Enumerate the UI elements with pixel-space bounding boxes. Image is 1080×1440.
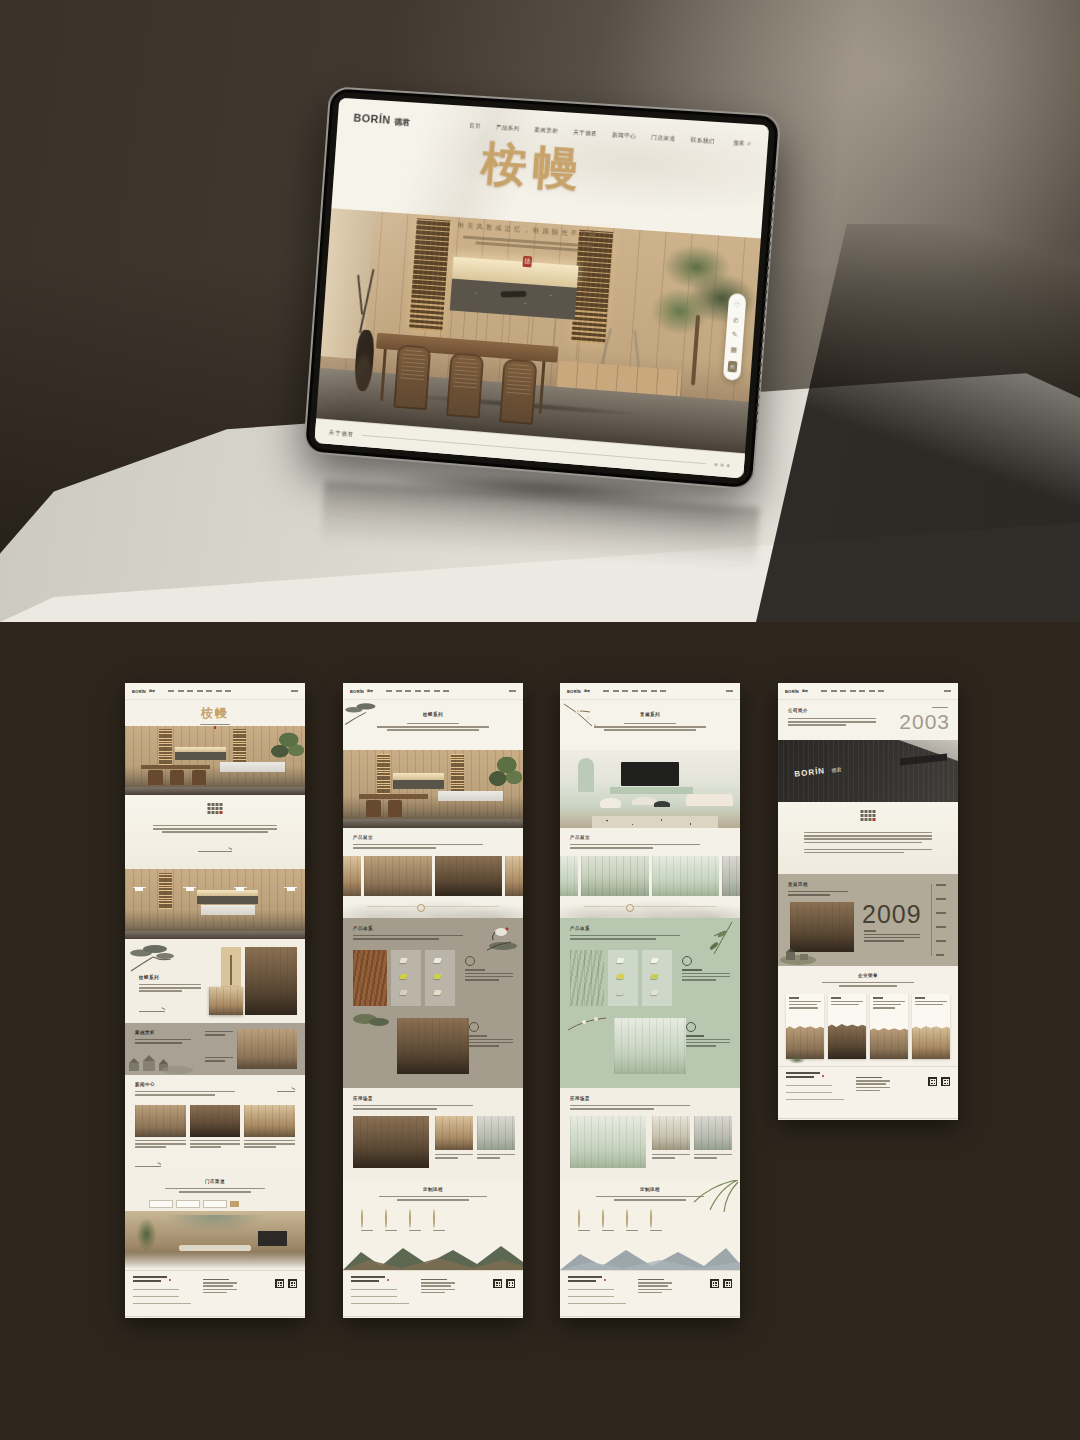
mini-hero-title: 桉幔 [201, 706, 229, 720]
news-all-button[interactable] [135, 1162, 161, 1167]
mini-header: BORÍN 德君 [778, 683, 958, 700]
page-intro-placeholder [594, 723, 706, 731]
bottom-link-label[interactable]: 关于德君 [329, 429, 355, 438]
scene-caption [652, 1154, 690, 1159]
logo-text-cn: 德君 [394, 116, 410, 128]
news-photo [190, 1105, 241, 1137]
scene-caption [435, 1154, 473, 1159]
mini-footer [125, 1270, 305, 1318]
mini-footer [560, 1270, 740, 1318]
mini-logo: BORÍN [785, 689, 799, 694]
process-step[interactable] [602, 1210, 614, 1231]
page-title-section: 桉幔系列 [343, 700, 523, 750]
mini-header: BORÍN 德君 [125, 683, 305, 700]
footer-slogan [133, 1276, 167, 1282]
news-card[interactable] [244, 1105, 295, 1148]
display-gallery[interactable] [343, 856, 523, 896]
honor-card[interactable] [870, 994, 908, 1059]
page-title: 青黛系列 [560, 712, 740, 717]
magnifier-icon: ⌕ [747, 139, 752, 147]
gallery-photo [435, 856, 503, 896]
mini-search [509, 690, 516, 692]
poem-seal-block [861, 810, 876, 821]
mini-footer [778, 1066, 958, 1120]
series-hero-photo [560, 750, 740, 828]
mountain-mural [161, 1215, 269, 1239]
village-painting [778, 944, 834, 966]
phone-icon[interactable]: ✆ [733, 316, 739, 324]
honors-title: 企业荣誉 [778, 973, 958, 978]
intro-title: 公司简介 [788, 708, 808, 713]
gallery-photo [652, 856, 720, 896]
footer-contact [421, 1279, 455, 1293]
wood-grain-panel [353, 950, 387, 1006]
mist-mountains [560, 892, 740, 918]
case-caption [205, 1031, 233, 1036]
honor-card[interactable] [912, 994, 950, 1059]
mini-header: BORÍN 德君 [560, 683, 740, 700]
display-text-placeholder [353, 844, 483, 849]
cases-title: 案例赏析 [135, 1030, 155, 1035]
studio-scene: 桉幔 唯美风雅成追忆，唯愿韶光不负卿 德 ♡ ✆ ✎ ▦ 约 BORÍN [0, 0, 1080, 622]
milestone-year: 2009 [862, 900, 922, 929]
scene-photo-large [570, 1116, 646, 1168]
slogan-red-dot [169, 1279, 171, 1281]
gallery-photo-edge [343, 856, 361, 896]
case-caption [205, 1057, 233, 1062]
footer-contact [203, 1279, 237, 1293]
village-ink-painting [125, 1051, 195, 1075]
bedroom-photo [209, 987, 243, 1015]
series-text-placeholder [139, 984, 201, 992]
green-tree-painting [351, 1010, 391, 1030]
screenshot-home-page: BORÍN 德君 桉幔 [125, 683, 305, 1318]
news-photo [244, 1105, 295, 1137]
sofa [179, 1245, 251, 1251]
mini-search [291, 690, 298, 692]
stores-title: 门店渠道 [125, 1179, 305, 1184]
edit-icon[interactable]: ✎ [732, 331, 738, 339]
mini-logo-cn: 德君 [584, 689, 590, 693]
swatch-card [425, 950, 455, 1006]
cases-text-placeholder [135, 1039, 191, 1044]
scenes-section: 应用场景 [560, 1088, 740, 1180]
nav-item[interactable]: 关于德君 [573, 128, 597, 137]
stats-photo-section [125, 869, 305, 939]
series-more-button[interactable] [139, 1007, 165, 1012]
news-more-button[interactable] [277, 1087, 295, 1092]
process-section: 定制流程 [560, 1180, 740, 1270]
timeline-years[interactable] [931, 884, 952, 956]
case-photo [237, 1029, 297, 1069]
misty-mountain-painting [560, 1240, 740, 1270]
page-title-section: 青黛系列 [560, 700, 740, 750]
nav-item[interactable]: 联系我们 [690, 136, 715, 145]
swatch-card [642, 950, 672, 1006]
mini-hero-room [125, 726, 305, 795]
tablet-device: 桉幔 唯美风雅成追忆，唯愿韶光不负卿 德 ♡ ✆ ✎ ▦ 约 BORÍN [303, 86, 781, 490]
texture-panel [570, 950, 604, 1006]
news-photo [135, 1105, 186, 1137]
footer-qrcodes [493, 1279, 515, 1288]
system-text-placeholder [570, 935, 680, 940]
store-search-button[interactable] [230, 1201, 239, 1207]
series-title: 桉幔系列 [139, 975, 159, 980]
honor-cards [786, 994, 950, 1059]
qr-code [288, 1279, 297, 1288]
pine-ink-painting [127, 943, 179, 973]
main-nav: 首页产品系列案例赏析关于德君新闻中心门店渠道联系我们 [469, 122, 715, 145]
page-title: 桉幔系列 [343, 712, 523, 717]
poem-seal-block [208, 803, 223, 814]
scenes-title: 应用场景 [353, 1096, 373, 1101]
nav-item[interactable]: 首页 [469, 122, 481, 130]
process-step[interactable] [626, 1210, 638, 1231]
qr-code [941, 1077, 950, 1086]
mini-logo: BORÍN [132, 689, 146, 694]
search-control[interactable]: 搜索 ⌕ [733, 138, 752, 147]
process-step[interactable] [433, 1210, 445, 1231]
news-card[interactable] [190, 1105, 241, 1148]
scene-caption [477, 1154, 515, 1159]
mini-footer [343, 1270, 523, 1318]
mini-nav [386, 690, 449, 692]
display-gallery[interactable] [560, 856, 740, 896]
milestone-text-placeholder [864, 930, 920, 942]
site-logo[interactable]: BORÍN 德君 [353, 111, 411, 128]
process-title: 定制流程 [343, 1187, 523, 1192]
mini-header: BORÍN 德君 [343, 683, 523, 700]
display-text-placeholder [570, 844, 700, 849]
willow-branch-painting [680, 1180, 740, 1214]
system-feature-2 [469, 1022, 513, 1047]
red-seal-stamp: 德 [522, 256, 532, 268]
footer-qrcodes [275, 1279, 297, 1288]
mini-logo-cn: 德君 [367, 689, 373, 693]
qr-icon[interactable]: ▦ [730, 346, 737, 354]
process-step[interactable] [409, 1210, 421, 1231]
founded-year: 2003 [899, 710, 950, 734]
honor-photo [912, 1025, 950, 1059]
honor-photo [786, 1025, 824, 1059]
building-logo-en: BORÍN [794, 766, 826, 779]
honors-text-placeholder [822, 982, 914, 987]
leaf-branch-painting [698, 920, 738, 960]
process-step[interactable] [650, 1210, 662, 1231]
system-text-placeholder [353, 935, 463, 940]
heart-icon[interactable]: ♡ [734, 301, 741, 309]
product-system-section: 产品体系 [560, 918, 740, 1088]
gallery-photo [364, 856, 432, 896]
tablet-screen: 桉幔 唯美风雅成追忆，唯愿韶光不负卿 德 ♡ ✆ ✎ ▦ 约 BORÍN [314, 98, 769, 479]
stores-text-placeholder [165, 1188, 265, 1193]
scenes-section: 应用场景 [343, 1088, 523, 1180]
history-text-placeholder [788, 891, 848, 896]
mini-nav [603, 690, 666, 692]
scene-photo [694, 1116, 732, 1150]
footer-slogan [351, 1276, 385, 1282]
qr-code [275, 1279, 284, 1288]
process-section: 定制流程 [343, 1180, 523, 1270]
footer-bottom-bar [343, 1316, 523, 1318]
showroom-photo [125, 1211, 305, 1270]
footer-qrcodes [928, 1077, 950, 1086]
scenes-title: 应用场景 [570, 1096, 590, 1101]
product-display-section: 产品展示 [560, 828, 740, 918]
gallery-photo-edge [505, 856, 523, 896]
process-step[interactable] [385, 1210, 397, 1231]
province-select[interactable] [149, 1200, 173, 1208]
footer-qrcodes [710, 1279, 732, 1288]
rattan-chair [446, 352, 484, 418]
scene-photo [477, 1116, 515, 1150]
district-select[interactable] [203, 1200, 227, 1208]
mountain-painting [343, 1240, 523, 1270]
footer-slogan [568, 1276, 602, 1282]
history-title: 发展历程 [788, 882, 808, 887]
mini-nav [821, 690, 884, 692]
news-cards [135, 1105, 295, 1148]
scenes-text-placeholder [353, 1105, 473, 1110]
rattan-chair [393, 344, 431, 410]
screenshot-about-page: BORÍN 德君 公司简介 2003 BORÍN 德君 [778, 683, 958, 1120]
footer-contact [856, 1077, 890, 1091]
swatch-card [391, 950, 421, 1006]
gallery-photo [581, 856, 649, 896]
honor-photo [870, 1027, 908, 1059]
process-steps [361, 1210, 445, 1231]
intro-text-placeholder [153, 825, 277, 833]
booking-tag[interactable]: 约 [727, 361, 737, 373]
scene-photo [652, 1116, 690, 1150]
process-steps [578, 1210, 662, 1231]
more-button[interactable] [198, 847, 232, 852]
fade-out [125, 1252, 305, 1270]
screenshot-product-wood-page: BORÍN 德君 桉幔系列 产品展示 [343, 683, 523, 1318]
product-photo [614, 1018, 686, 1074]
system-feature [682, 956, 730, 981]
honor-photo [828, 1023, 866, 1059]
mini-logo: BORÍN [350, 689, 364, 694]
about-text-section [778, 802, 958, 874]
footer-slogan [786, 1072, 820, 1078]
about-paragraphs-placeholder [804, 832, 932, 853]
system-feature [465, 956, 513, 981]
footer-bottom-bar [125, 1316, 305, 1318]
stores-section: 门店渠道 [125, 1173, 305, 1270]
swatch-card [608, 950, 638, 1006]
scene-photo [435, 1116, 473, 1150]
mist-mountains [343, 892, 523, 918]
series-section: 桉幔系列 [125, 939, 305, 1023]
since-label-placeholder [932, 707, 948, 708]
news-card[interactable] [135, 1105, 186, 1148]
mini-search [726, 690, 733, 692]
material-samples [570, 950, 672, 1006]
display-title: 产品展示 [353, 835, 373, 840]
mini-nav [168, 690, 231, 692]
mini-hero: 桉幔 [125, 700, 305, 795]
nav-item[interactable]: 案例赏析 [534, 126, 558, 135]
city-select[interactable] [176, 1200, 200, 1208]
news-intro-placeholder [135, 1091, 235, 1096]
search-label: 搜索 [733, 139, 745, 147]
system-title: 产品体系 [353, 926, 373, 931]
scenes-text-placeholder [570, 1105, 690, 1110]
plant-decoration [788, 1056, 806, 1064]
product-system-section: 产品体系 [343, 918, 523, 1088]
company-intro-section: 公司简介 2003 [778, 700, 958, 740]
qr-code [723, 1279, 732, 1288]
nav-item[interactable]: 新闻中心 [612, 131, 637, 140]
footer-bottom-bar [778, 1118, 958, 1120]
slogan-red-dot [387, 1279, 389, 1281]
qr-code [493, 1279, 502, 1288]
footer-contact [638, 1279, 672, 1293]
system-feature-2 [686, 1022, 730, 1047]
screenshot-product-green-page: BORÍN 德君 青黛系列 产品展示 [560, 683, 740, 1318]
qr-code [928, 1077, 937, 1086]
intro-text-placeholder [788, 718, 876, 726]
crane-painting [481, 920, 521, 956]
gallery-photo-edge [722, 856, 740, 896]
nav-item[interactable]: 产品系列 [496, 123, 520, 132]
thumbnail-gallery: BORÍN 德君 桉幔 [0, 622, 1080, 1440]
mini-logo: BORÍN [567, 689, 581, 694]
system-title: 产品体系 [570, 926, 590, 931]
tv-panel [258, 1231, 287, 1246]
honors-section: 企业荣誉 [778, 966, 958, 1066]
process-text-placeholder [379, 1196, 487, 1201]
honor-card[interactable] [828, 994, 866, 1059]
material-samples [353, 950, 455, 1006]
plant [136, 1217, 158, 1252]
mini-search [944, 690, 951, 692]
product-display-section: 产品展示 [343, 828, 523, 918]
history-section: 发展历程 2009 [778, 874, 958, 966]
gallery-photo-edge [560, 856, 578, 896]
qr-code [506, 1279, 515, 1288]
mockup-presentation: 桉幔 唯美风雅成追忆，唯愿韶光不负卿 德 ♡ ✆ ✎ ▦ 约 BORÍN [0, 0, 1080, 1440]
slogan-red-dot [604, 1279, 606, 1281]
nav-item[interactable]: 门店渠道 [651, 133, 676, 142]
slogan-red-dot [822, 1075, 824, 1077]
scene-photo-large [353, 1116, 429, 1168]
building-photo: BORÍN 德君 [778, 740, 958, 802]
potted-plant [644, 241, 766, 400]
blossom-branch-painting [566, 1010, 610, 1032]
shelf-sculpture [500, 291, 526, 298]
rattan-chair [499, 358, 537, 424]
mini-intro-section [125, 795, 305, 869]
news-section: 新闻中心 [125, 1075, 305, 1173]
mini-logo-cn: 德君 [802, 689, 808, 693]
product-photo [397, 1018, 469, 1074]
study-room-photo [245, 947, 297, 1015]
mini-logo-cn: 德君 [149, 689, 155, 693]
process-step[interactable] [361, 1210, 373, 1231]
news-title: 新闻中心 [135, 1082, 155, 1087]
pager-dots[interactable] [714, 462, 729, 466]
logo-text-en: BORÍN [353, 111, 391, 125]
display-title: 产品展示 [570, 835, 590, 840]
honor-card[interactable] [786, 994, 824, 1059]
process-step[interactable] [578, 1210, 590, 1231]
cases-section: 案例赏析 [125, 1023, 305, 1075]
store-search-bar [149, 1200, 239, 1208]
qr-code [710, 1279, 719, 1288]
footer-bottom-bar [560, 1316, 740, 1318]
building-logo-cn: 德君 [831, 766, 842, 773]
page-intro-placeholder [377, 723, 489, 731]
series-hero-photo [343, 750, 523, 828]
scene-caption [694, 1154, 732, 1159]
